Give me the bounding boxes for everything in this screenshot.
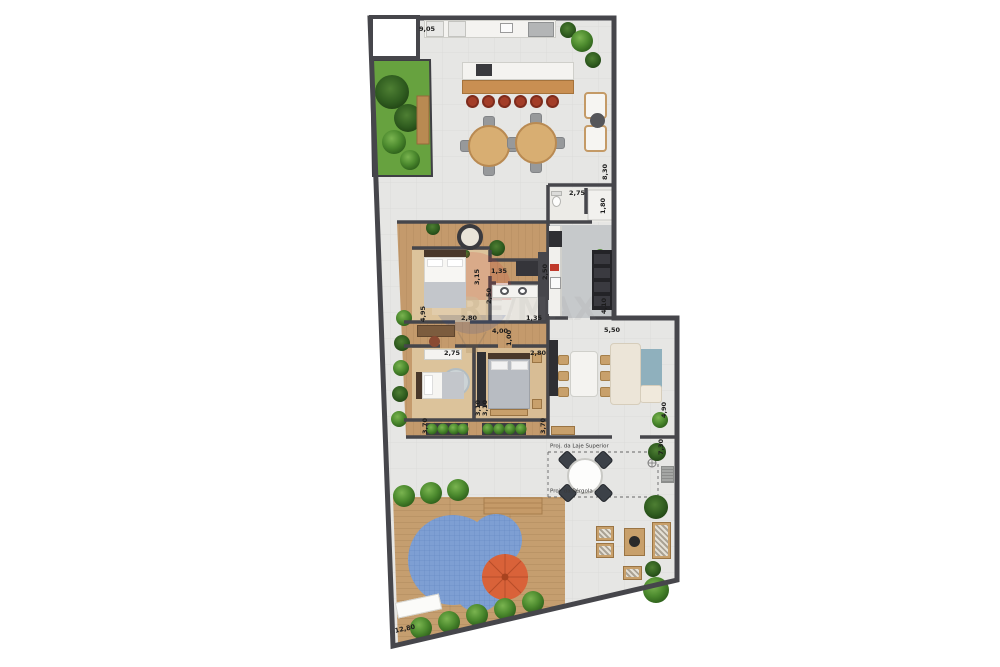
- toilet: [552, 196, 561, 207]
- wardrobe: [516, 261, 538, 276]
- bed-blanket: [424, 282, 466, 308]
- dining-table: [570, 351, 598, 397]
- garden-bed: [371, 60, 432, 176]
- pillow: [491, 361, 508, 370]
- void-opening: [371, 17, 418, 58]
- counter-cabinet: [448, 21, 466, 37]
- bar-stool: [466, 95, 479, 108]
- tv-panel: [549, 340, 558, 396]
- nightstand: [532, 353, 542, 363]
- deck-steps: [484, 498, 542, 514]
- sink: [500, 287, 509, 295]
- dining-chair: [558, 371, 569, 381]
- pillow: [511, 361, 528, 370]
- outdoor-chair: [596, 543, 614, 558]
- bed-bench: [490, 409, 528, 416]
- umbrella: [482, 554, 528, 600]
- sofa: [610, 343, 641, 405]
- sideboard: [551, 426, 575, 435]
- dining-chair: [558, 387, 569, 397]
- side-table: [590, 113, 605, 128]
- bar-island-base: [462, 80, 574, 94]
- master-bed-headboard: [424, 250, 466, 257]
- round-table: [468, 125, 510, 167]
- bed-blanket: [442, 372, 464, 399]
- pillow: [424, 375, 433, 395]
- wardrobe: [477, 352, 486, 406]
- outdoor-loveseat: [652, 522, 671, 559]
- kitchen-sink: [550, 277, 561, 289]
- grill-module: [528, 22, 554, 37]
- fire-bowl: [629, 536, 640, 547]
- bathroom-vanity: [492, 285, 538, 298]
- hanging-egg-chair: [457, 224, 483, 250]
- bar-stool: [546, 95, 559, 108]
- dining-chair: [558, 355, 569, 365]
- nightstand: [532, 399, 542, 409]
- oven: [594, 296, 610, 306]
- bar-stool: [514, 95, 527, 108]
- ac-louver: [661, 466, 674, 483]
- oven: [594, 254, 610, 264]
- round-table: [515, 122, 557, 164]
- oven: [594, 282, 610, 292]
- patio-table: [567, 458, 603, 494]
- bar-stool: [482, 95, 495, 108]
- desk: [417, 325, 455, 337]
- outdoor-chair: [596, 526, 614, 541]
- island-cooktop: [476, 64, 492, 76]
- pillow: [427, 259, 443, 267]
- shelf-desk: [424, 349, 462, 360]
- shower-area: [588, 190, 612, 220]
- oven: [594, 268, 610, 278]
- desk-chair: [429, 336, 440, 347]
- sink: [518, 287, 527, 295]
- outdoor-bench: [623, 566, 642, 580]
- pillow: [447, 259, 463, 267]
- bar-stool: [530, 95, 543, 108]
- kitchen-cooktop: [549, 231, 562, 247]
- kitchen-appliance: [550, 264, 559, 271]
- bar-stool: [498, 95, 511, 108]
- sun-lounger: [584, 125, 607, 152]
- counter-sink: [500, 23, 513, 33]
- counter-cabinet: [426, 21, 444, 37]
- sofa-chaise: [640, 385, 662, 403]
- floor-plan: RE/MAX: [0, 0, 1000, 667]
